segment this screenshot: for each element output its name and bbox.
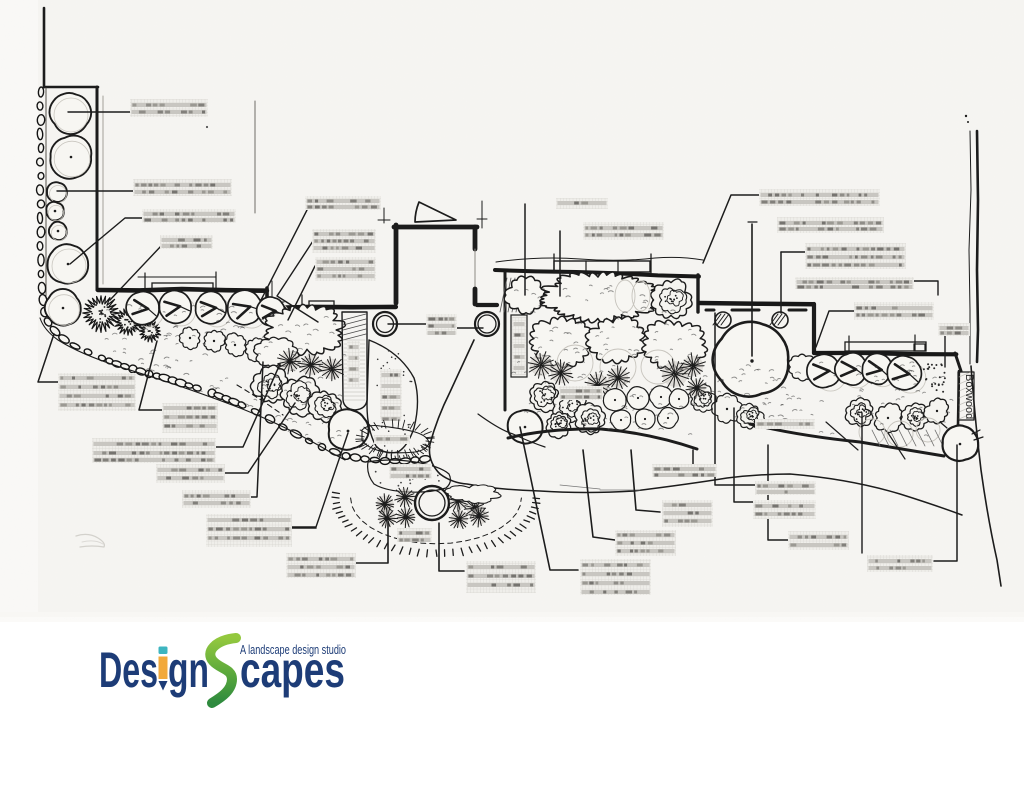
svg-text:Des: Des	[99, 642, 158, 698]
svg-text:gn: gn	[168, 642, 209, 698]
svg-text:A landscape design studio: A landscape design studio	[240, 643, 346, 657]
